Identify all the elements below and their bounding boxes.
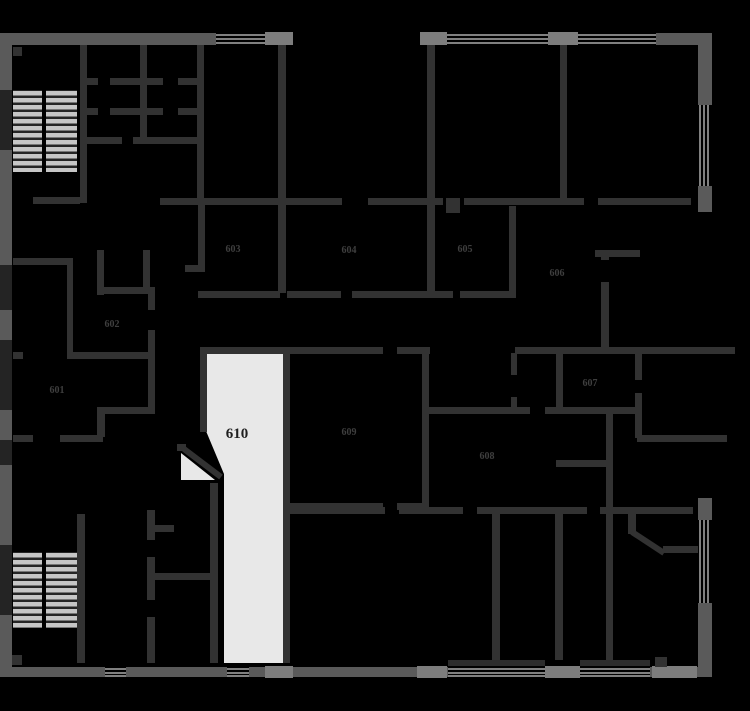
room-label-605: 605 [458,244,473,255]
room-label-604: 604 [342,245,357,256]
room-label-609: 609 [342,427,357,438]
floor-plan-canvas: 601 602 603 604 605 606 607 608 609 610 [0,0,750,711]
room-label-606: 606 [550,268,565,279]
room-label-607: 607 [583,378,598,389]
room-label-608: 608 [480,451,495,462]
room-label-610[interactable]: 610 [226,426,249,442]
room-label-601: 601 [50,385,65,396]
floor-plan-svg: 601 602 603 604 605 606 607 608 609 610 [0,0,750,711]
room-label-603: 603 [226,244,241,255]
room-label-602: 602 [105,319,120,330]
